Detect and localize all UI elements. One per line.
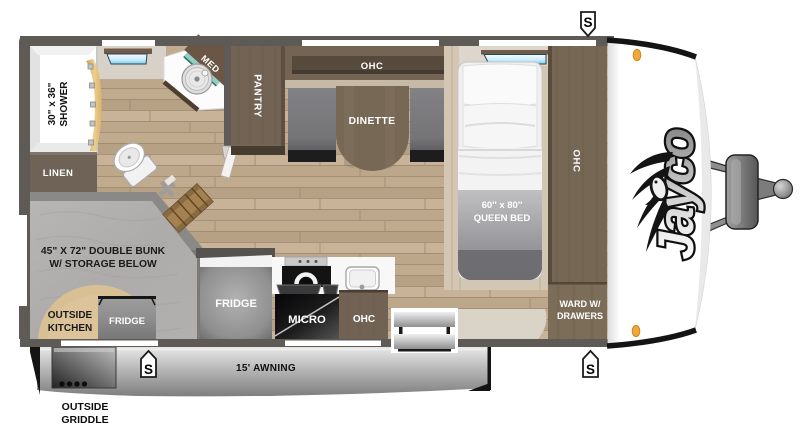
svg-text:15' AWNING: 15' AWNING bbox=[236, 363, 296, 374]
svg-text:S: S bbox=[586, 362, 595, 377]
svg-text:OUTSIDE: OUTSIDE bbox=[62, 401, 109, 413]
svg-text:SHOWER: SHOWER bbox=[59, 81, 70, 127]
svg-text:OHC: OHC bbox=[361, 61, 384, 72]
svg-text:OUTSIDE: OUTSIDE bbox=[48, 310, 93, 321]
svg-text:MICRO: MICRO bbox=[288, 314, 326, 326]
svg-text:30" x 36": 30" x 36" bbox=[47, 82, 58, 125]
svg-text:LINEN: LINEN bbox=[43, 168, 74, 179]
svg-text:PANTRY: PANTRY bbox=[252, 74, 263, 118]
svg-text:S: S bbox=[583, 15, 592, 30]
svg-text:60'' x 80'': 60'' x 80'' bbox=[482, 200, 523, 211]
svg-text:W/ STORAGE BELOW: W/ STORAGE BELOW bbox=[49, 259, 157, 270]
svg-text:OHC: OHC bbox=[353, 314, 375, 325]
svg-text:GRIDDLE: GRIDDLE bbox=[61, 414, 108, 426]
svg-text:45" X 72" DOUBLE BUNK: 45" X 72" DOUBLE BUNK bbox=[41, 246, 166, 257]
svg-text:WARD W/: WARD W/ bbox=[560, 299, 601, 309]
svg-text:OHC: OHC bbox=[571, 150, 582, 173]
svg-text:S: S bbox=[144, 362, 153, 377]
svg-text:DRAWERS: DRAWERS bbox=[557, 311, 603, 321]
svg-text:KITCHEN: KITCHEN bbox=[48, 323, 92, 334]
svg-text:FRIDGE: FRIDGE bbox=[215, 298, 257, 310]
svg-text:QUEEN BED: QUEEN BED bbox=[474, 213, 531, 224]
svg-text:DINETTE: DINETTE bbox=[349, 116, 396, 127]
svg-text:FRIDGE: FRIDGE bbox=[109, 316, 145, 327]
